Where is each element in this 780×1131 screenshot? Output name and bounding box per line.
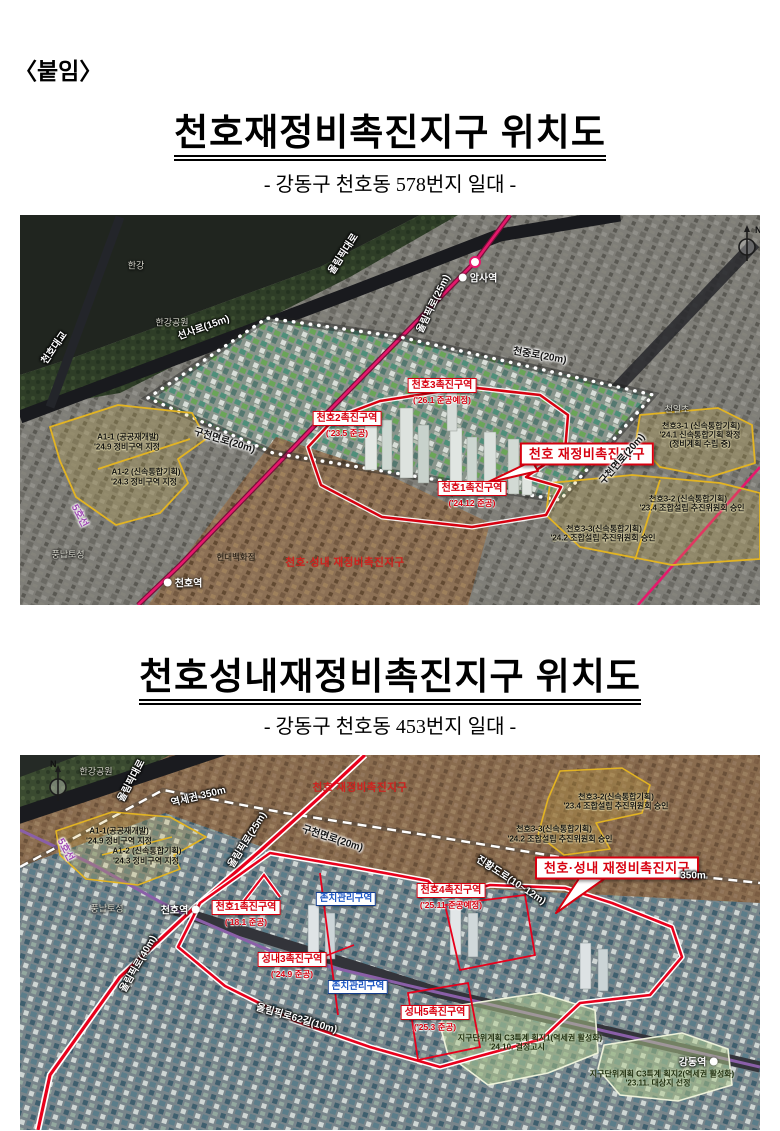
- c3-parcel2-note2: '23.11. 대상지 선정: [626, 1078, 691, 1089]
- map-cheonho-seongnae-district: N 한강공원올림픽대로역세권 350m천호 재정비촉진지구A1-1(공공재개발)…: [20, 755, 760, 1130]
- zone-box-text: 천호3촉진구역: [408, 378, 477, 393]
- section1-title-text: 천호재정비촉진지구 위치도: [174, 112, 606, 161]
- section1-subtitle: - 강동구 천호동 578번지 일대 -: [0, 168, 780, 197]
- zone-box-text: 천호4촉진구역: [417, 883, 486, 898]
- document-page: { "document": { "attachment_label": "〈붙임…: [0, 0, 780, 1131]
- section2-subtitle: - 강동구 천호동 453번지 일대 -: [0, 710, 780, 739]
- cheonho3-3-note2: '24.2 조합설립 추진위원회 승인: [507, 834, 612, 845]
- han-river-park-label: 한강공원: [79, 765, 112, 778]
- svg-text:N: N: [50, 759, 57, 769]
- keep-mgmt-zone-label-1: 존치관리구역: [316, 892, 376, 906]
- zone-completion-date: ('24.12 준공): [438, 497, 507, 509]
- station-dot-icon: [164, 578, 172, 586]
- a1-1-note2: '24.9 정비구역 지정: [94, 442, 160, 453]
- zone-completion-date: ('25.11 준공예정): [417, 899, 486, 911]
- cheonho3-2-note2: '23.4 조합설립 추진위원회 승인: [563, 801, 668, 812]
- svg-text:N: N: [755, 225, 760, 235]
- gangdong-station-label: 강동역: [679, 1054, 718, 1069]
- station-name: 천호역: [175, 575, 203, 590]
- cheonho-station-label: 천호역: [164, 575, 203, 590]
- station-dot-icon: [459, 273, 467, 281]
- zone-box-text: 성내5촉진구역: [401, 1005, 470, 1020]
- cheonho-station-label: 천호역: [161, 902, 200, 917]
- station-name: 암사역: [470, 270, 498, 285]
- section1-title: 천호재정비촉진지구 위치도: [0, 102, 780, 156]
- a1-2-note2: '24.3 정비구역 지정: [111, 477, 177, 488]
- map-cheonho-district: N 한강한강공원천호대교올림픽대로선사로(15m)암사역올림픽로(25m)천중로…: [20, 215, 760, 605]
- dist-350m-label: 350m: [680, 871, 706, 882]
- station-dot-icon: [709, 1057, 717, 1065]
- cheonho-seongnae-callout: 천호·성내 재정비촉진지구: [535, 857, 699, 880]
- station-name: 천호역: [161, 902, 189, 917]
- zone-completion-date: ('26.1 준공예정): [408, 394, 477, 406]
- pungnap-toseong-label: 풍납토성: [90, 902, 123, 915]
- seongnae5-zone-label: 성내5촉진구역('25.3 준공): [401, 1005, 470, 1033]
- zone-completion-date: ('24.9 준공): [258, 968, 327, 980]
- cheonho3-zone-label: 천호3촉진구역('26.1 준공예정): [408, 378, 477, 406]
- zone-box-text: 천호1촉진구역: [212, 900, 281, 915]
- cheonho3-3-note2: '24.2 조합설립 추진위원회 승인: [550, 533, 655, 544]
- cheonho1-zone-label: 천호1촉진구역('24.12 준공): [438, 481, 507, 509]
- cheonho2-zone-label: 천호2촉진구역('23.5 준공): [313, 411, 382, 439]
- cheonho-district-text: 천호 재정비촉진지구: [313, 780, 408, 795]
- zone-box-text: 천호1촉진구역: [438, 481, 507, 496]
- zone-box-text: 성내3촉진구역: [258, 952, 327, 967]
- cheonho-seongnae-district-text: 천호·성내 재정비촉진지구: [285, 555, 404, 570]
- keep-mgmt-zone-label-2: 존치관리구역: [328, 980, 388, 994]
- han-river-label: 한강: [128, 259, 145, 272]
- section2-title-text: 천호성내재정비촉진지구 위치도: [139, 656, 641, 705]
- zone-box-text: 천호2촉진구역: [313, 411, 382, 426]
- amsa-station-label: 암사역: [459, 270, 498, 285]
- cheonho1-zone-label: 천호1촉진구역('18.1 준공): [212, 900, 281, 928]
- map1-artwork: N: [20, 215, 760, 605]
- station-dot-icon: [191, 905, 199, 913]
- amsa-station-dot: [470, 257, 480, 267]
- zone-box-text: 존치관리구역: [316, 892, 376, 906]
- station-name: 강동역: [679, 1054, 707, 1069]
- zone-completion-date: ('23.5 준공): [313, 427, 382, 439]
- attachment-label: 〈붙임〉: [14, 52, 102, 86]
- zone-box-text: 존치관리구역: [328, 980, 388, 994]
- pungnap-toseong-label: 풍납토성: [51, 548, 84, 561]
- cheonho3-2-note2: '23.4 조합설립 추진위원회 승인: [639, 503, 744, 514]
- cheonho3-1-note3: (정비계획 수립 중): [669, 439, 730, 450]
- cheonho4-zone-label: 천호4촉진구역('25.11 준공예정): [417, 883, 486, 911]
- zone-completion-date: ('18.1 준공): [212, 916, 281, 928]
- hyundai-dept-store-label: 현대백화점: [216, 551, 255, 563]
- cheonil-school-label: 천일초: [665, 403, 690, 416]
- seongnae3-zone-label: 성내3촉진구역('24.9 준공): [258, 952, 327, 980]
- c3-parcel1-note2: '24.10. 결정고시: [489, 1042, 545, 1053]
- section2-title: 천호성내재정비촉진지구 위치도: [0, 646, 780, 700]
- a1-2-note2: '24.3 정비구역 지정: [113, 856, 179, 867]
- zone-completion-date: ('25.3 준공): [401, 1021, 470, 1033]
